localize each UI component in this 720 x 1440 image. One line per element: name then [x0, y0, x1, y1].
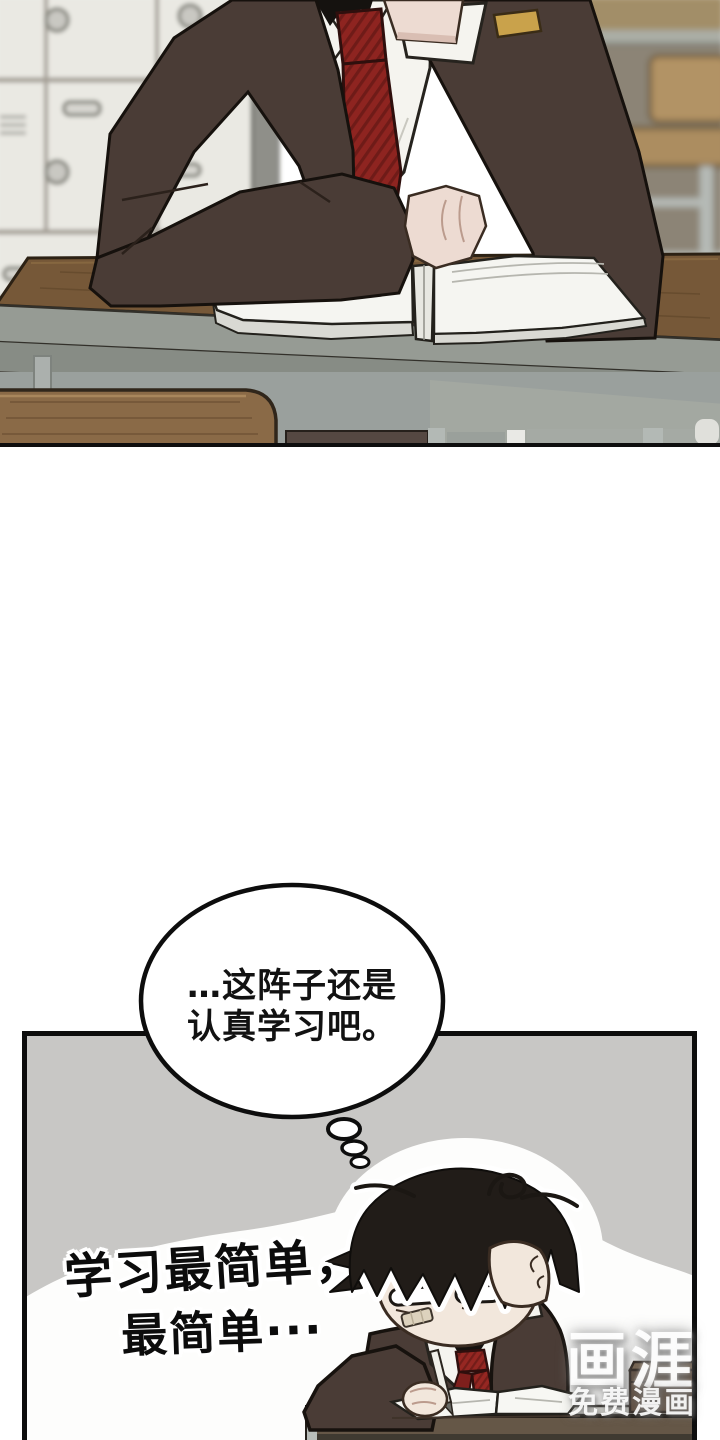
- necktie: [337, 9, 386, 64]
- writing-hand: [403, 1382, 447, 1416]
- pocket-square: [494, 10, 541, 37]
- caption-line-2: 最简单···: [120, 1293, 325, 1366]
- panel-classroom: [0, 0, 720, 447]
- thought-bubble-text: …这阵子还是 认真学习吧。: [187, 966, 397, 1048]
- comic-page: …这阵子还是 认真学习吧。 学习最简单， 最简单··· 画涯 免费漫画: [0, 0, 720, 1440]
- hand-on-temple: [489, 1241, 549, 1306]
- thought-line-1: …这阵子还是: [187, 966, 397, 1007]
- classroom-illustration: [0, 0, 720, 447]
- watermark-tagline: 免费漫画: [568, 1378, 696, 1422]
- thought-line-2: 认真学习吧。: [187, 1007, 397, 1048]
- chibi-tie: [456, 1350, 488, 1372]
